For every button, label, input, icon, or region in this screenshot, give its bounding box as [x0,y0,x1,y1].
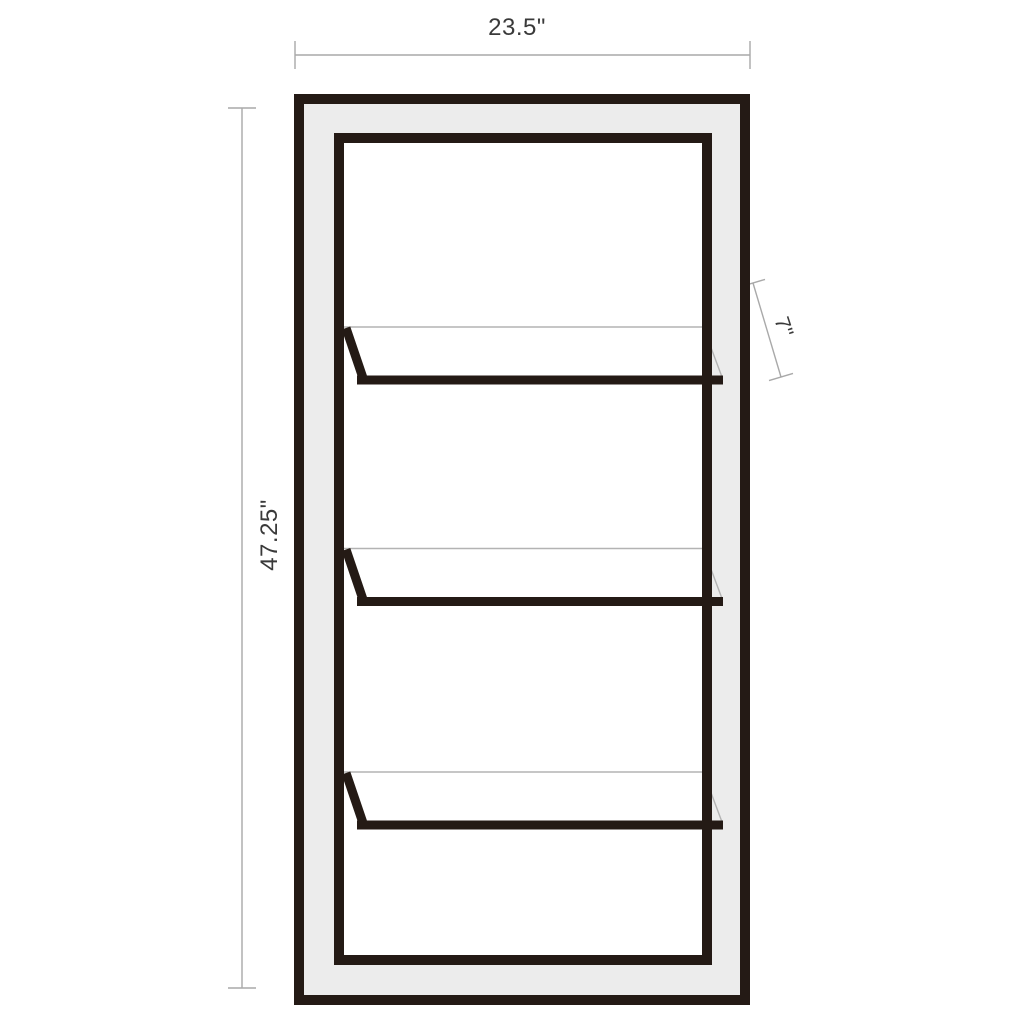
shelf-unit-dimension-drawing: 23.5" 47.25" 7" [0,0,1024,1024]
height-dimension-label: 47.25" [256,499,283,571]
width-dimension-line [295,41,750,69]
dimension-drawing-page: 23.5" 47.25" 7" [0,0,1024,1024]
depth-dimension-label: 7" [769,314,797,340]
height-dimension-line [228,108,256,988]
depth-dimension-bottom-tick [769,373,793,380]
width-dimension-label: 23.5" [488,14,546,41]
